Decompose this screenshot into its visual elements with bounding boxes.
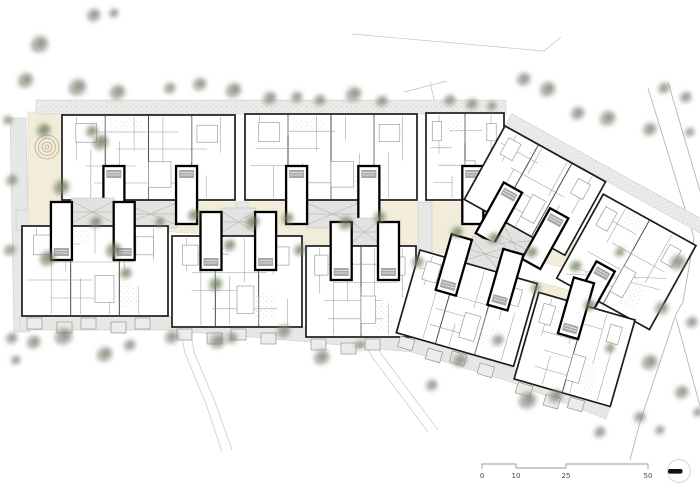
boundary-line (352, 34, 561, 51)
tree-icon (109, 8, 119, 18)
tree-canopy (684, 93, 691, 100)
tree-canopy (534, 285, 540, 291)
tree-canopy (660, 303, 668, 311)
balcony (135, 318, 150, 329)
tree-icon (3, 115, 13, 125)
tree-canopy (358, 342, 364, 348)
tree-icon (6, 174, 18, 186)
tree-canopy (648, 124, 656, 132)
tree-canopy (10, 176, 17, 183)
room (136, 237, 154, 255)
tree-icon (634, 411, 646, 423)
tree-canopy (496, 336, 503, 343)
tree-canopy (618, 249, 624, 255)
tree-icon (17, 72, 34, 88)
tree-canopy (90, 127, 97, 134)
terrace-texture (110, 118, 141, 133)
tree-icon (30, 35, 49, 53)
scale-label: 10 (512, 472, 521, 480)
tree-canopy (124, 269, 131, 276)
tree-icon (165, 330, 179, 344)
tree-canopy (8, 246, 15, 253)
tree-canopy (545, 83, 554, 92)
tree-icon (599, 110, 616, 126)
tree-canopy (351, 88, 360, 97)
tree-icon (426, 379, 438, 391)
tree-canopy (416, 258, 423, 265)
tree-canopy (458, 355, 466, 363)
tree-icon (96, 346, 113, 362)
tree-canopy (282, 326, 290, 334)
tree-canopy (430, 381, 437, 388)
tree-icon (314, 94, 326, 106)
tree-icon (345, 86, 362, 102)
stair-landing (381, 268, 396, 276)
tree-canopy (6, 117, 12, 123)
stair-landing (334, 268, 349, 276)
tree-canopy (98, 136, 107, 145)
tree-canopy (530, 248, 537, 255)
marker-bar (668, 469, 683, 474)
tree-canopy (605, 112, 614, 121)
stair-landing (106, 170, 121, 178)
tree-canopy (319, 351, 328, 360)
tree-icon (68, 78, 87, 96)
tree-canopy (23, 74, 32, 83)
tree-icon (263, 91, 277, 105)
room (331, 161, 353, 187)
scale-bar: 0102550 (480, 464, 653, 480)
tree-canopy (268, 93, 276, 101)
scale-label: 50 (644, 472, 653, 480)
stair-landing (289, 170, 304, 178)
tree-icon (517, 72, 531, 86)
tree-canopy (492, 234, 499, 241)
tree-icon (109, 84, 126, 100)
balcony (341, 343, 356, 354)
tree-canopy (170, 332, 178, 340)
tree-canopy (102, 348, 111, 357)
tree-canopy (647, 356, 656, 365)
tree-canopy (10, 334, 17, 341)
tree-canopy (344, 218, 352, 226)
scale-bar-line (482, 464, 648, 469)
tree-icon (685, 127, 695, 137)
tree-canopy (680, 387, 688, 395)
scale-label: 0 (480, 472, 484, 480)
tree-canopy (690, 318, 697, 325)
tree-icon (655, 425, 665, 435)
tree-icon (124, 339, 136, 351)
balcony (81, 318, 96, 329)
tree-canopy (662, 84, 669, 91)
room (361, 296, 375, 323)
tree-canopy (59, 181, 68, 190)
tree-canopy (470, 100, 477, 107)
tree-canopy (522, 74, 530, 82)
stair-landing (204, 258, 219, 266)
tree-icon (225, 82, 242, 98)
tree-icon (4, 244, 16, 256)
tree-canopy (158, 219, 164, 225)
room (95, 276, 114, 303)
tree-canopy (75, 81, 85, 91)
tree-canopy (92, 10, 100, 18)
terrace-texture (448, 116, 462, 132)
stair-landing (179, 170, 194, 178)
tree-canopy (230, 334, 237, 341)
boundary-line (404, 81, 447, 92)
tree-icon (164, 82, 176, 94)
tree-canopy (94, 218, 101, 225)
stair-landing (54, 248, 69, 256)
tree-icon (693, 407, 700, 417)
tree-icon (686, 316, 698, 328)
tree-canopy (286, 214, 293, 221)
courtyard-link-path (418, 202, 432, 254)
tree-canopy (168, 84, 175, 91)
scale-label: 25 (562, 472, 571, 480)
tree-canopy (251, 217, 259, 225)
tree-icon (643, 122, 657, 136)
tree-canopy (525, 394, 535, 404)
tree-icon (539, 81, 556, 97)
tree-icon (658, 82, 670, 94)
tree-canopy (688, 129, 694, 135)
tree-canopy (448, 96, 455, 103)
terrace-texture (293, 117, 324, 132)
site-plan-canvas: 0102550 (0, 0, 700, 495)
stair-landing (258, 258, 273, 266)
north-marker-icon (668, 460, 691, 483)
tree-canopy (295, 93, 302, 100)
tree-canopy (455, 228, 462, 235)
room (197, 125, 218, 142)
room (315, 255, 328, 275)
tree-canopy (574, 262, 581, 269)
tree-canopy (45, 252, 54, 261)
tree-icon (376, 95, 388, 107)
terrace-texture (374, 302, 393, 329)
tree-canopy (588, 301, 595, 308)
tree-canopy (42, 125, 50, 133)
tree-icon (680, 91, 692, 103)
tree-canopy (576, 108, 584, 116)
tree-icon (594, 426, 606, 438)
tree-canopy (14, 357, 20, 363)
room (487, 123, 496, 140)
tree-canopy (61, 330, 71, 340)
tree-canopy (111, 244, 120, 253)
tree-icon (641, 354, 658, 370)
tree-canopy (318, 96, 325, 103)
tree-canopy (608, 345, 614, 351)
tree-canopy (228, 241, 235, 248)
tree-canopy (115, 86, 124, 95)
room (432, 122, 441, 141)
room (237, 286, 254, 313)
balcony (111, 322, 126, 333)
tree-canopy (298, 246, 305, 253)
tree-canopy (198, 79, 206, 87)
room (182, 245, 198, 265)
tree-canopy (378, 213, 385, 220)
tree-icon (291, 91, 303, 103)
tree-icon (675, 385, 689, 399)
tree-icon (571, 106, 585, 120)
balcony (261, 333, 276, 344)
tree-canopy (638, 413, 645, 420)
tree-canopy (215, 335, 224, 344)
tree-canopy (598, 428, 605, 435)
balcony (27, 318, 42, 329)
tree-canopy (658, 427, 664, 433)
tree-icon (444, 94, 456, 106)
tree-icon (87, 8, 101, 22)
tree-canopy (128, 341, 135, 348)
tree-canopy (37, 38, 47, 48)
balcony (177, 329, 192, 340)
terrace-texture (113, 282, 138, 309)
balcony (365, 339, 380, 350)
tree-canopy (214, 279, 222, 287)
tree-icon (6, 332, 18, 344)
tree-icon (11, 355, 21, 365)
tree-canopy (192, 211, 199, 218)
balcony (311, 339, 326, 350)
tree-icon (313, 349, 330, 365)
tree-icon (27, 335, 41, 349)
room (259, 123, 280, 142)
tree-canopy (380, 97, 387, 104)
tree-icon (193, 77, 207, 91)
tree-canopy (32, 337, 40, 345)
tree-canopy (554, 391, 562, 399)
room (149, 162, 171, 188)
site-plan-drawing: 0102550 (0, 0, 700, 495)
stair-landing (361, 170, 376, 178)
tree-canopy (490, 103, 496, 109)
room (379, 124, 400, 141)
tree-canopy (231, 84, 240, 93)
tree-canopy (112, 10, 118, 16)
terrace-texture (253, 292, 275, 319)
tree-canopy (675, 256, 684, 265)
